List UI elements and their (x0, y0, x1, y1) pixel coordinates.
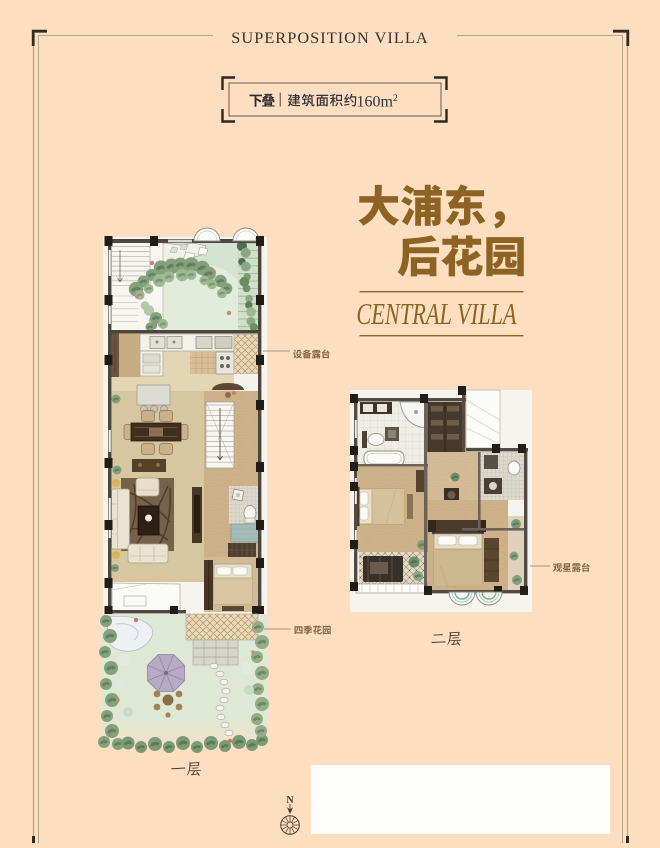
svg-text:CENTRAL VILLA: CENTRAL VILLA (356, 296, 517, 330)
svg-text:160m2: 160m2 (357, 94, 398, 111)
svg-text:SUPERPOSITION VILLA: SUPERPOSITION VILLA (231, 28, 428, 47)
